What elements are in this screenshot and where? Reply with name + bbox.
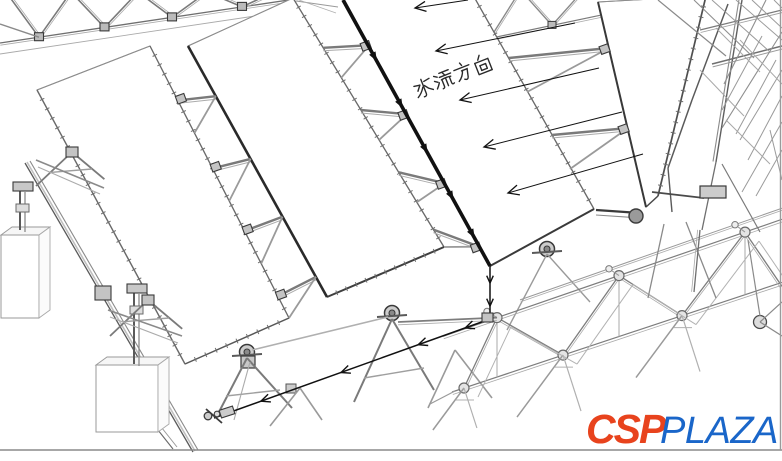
svg-text:CSP: CSP (586, 406, 667, 452)
svg-text:PLAZA: PLAZA (660, 410, 778, 452)
